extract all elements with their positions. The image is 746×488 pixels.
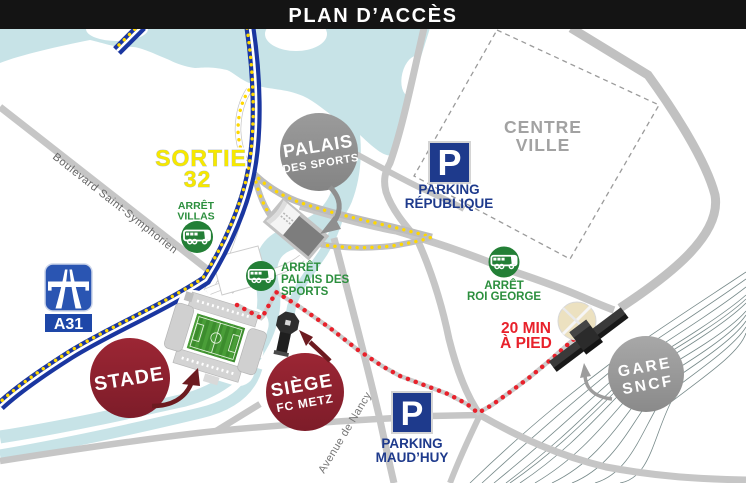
svg-text:PARKING: PARKING bbox=[381, 436, 442, 451]
svg-text:RÉPUBLIQUE: RÉPUBLIQUE bbox=[405, 196, 494, 211]
svg-text:CENTRE: CENTRE bbox=[504, 117, 582, 137]
svg-text:SPORTS: SPORTS bbox=[281, 286, 329, 298]
svg-text:MAUD’HUY: MAUD’HUY bbox=[376, 450, 449, 465]
svg-text:A31: A31 bbox=[54, 316, 83, 333]
svg-text:PALAIS DES: PALAIS DES bbox=[281, 274, 349, 286]
svg-text:ARRÊT: ARRÊT bbox=[281, 261, 321, 274]
svg-text:32: 32 bbox=[184, 166, 212, 192]
svg-text:P: P bbox=[437, 142, 461, 183]
svg-text:ROI GEORGE: ROI GEORGE bbox=[467, 291, 541, 303]
svg-text:P: P bbox=[401, 395, 424, 433]
svg-text:À PIED: À PIED bbox=[500, 335, 552, 352]
svg-text:VILLE: VILLE bbox=[516, 135, 571, 155]
svg-text:PARKING: PARKING bbox=[418, 182, 479, 197]
svg-text:VILLAS: VILLAS bbox=[177, 211, 214, 223]
svg-text:PLAN D’ACCÈS: PLAN D’ACCÈS bbox=[288, 4, 457, 27]
